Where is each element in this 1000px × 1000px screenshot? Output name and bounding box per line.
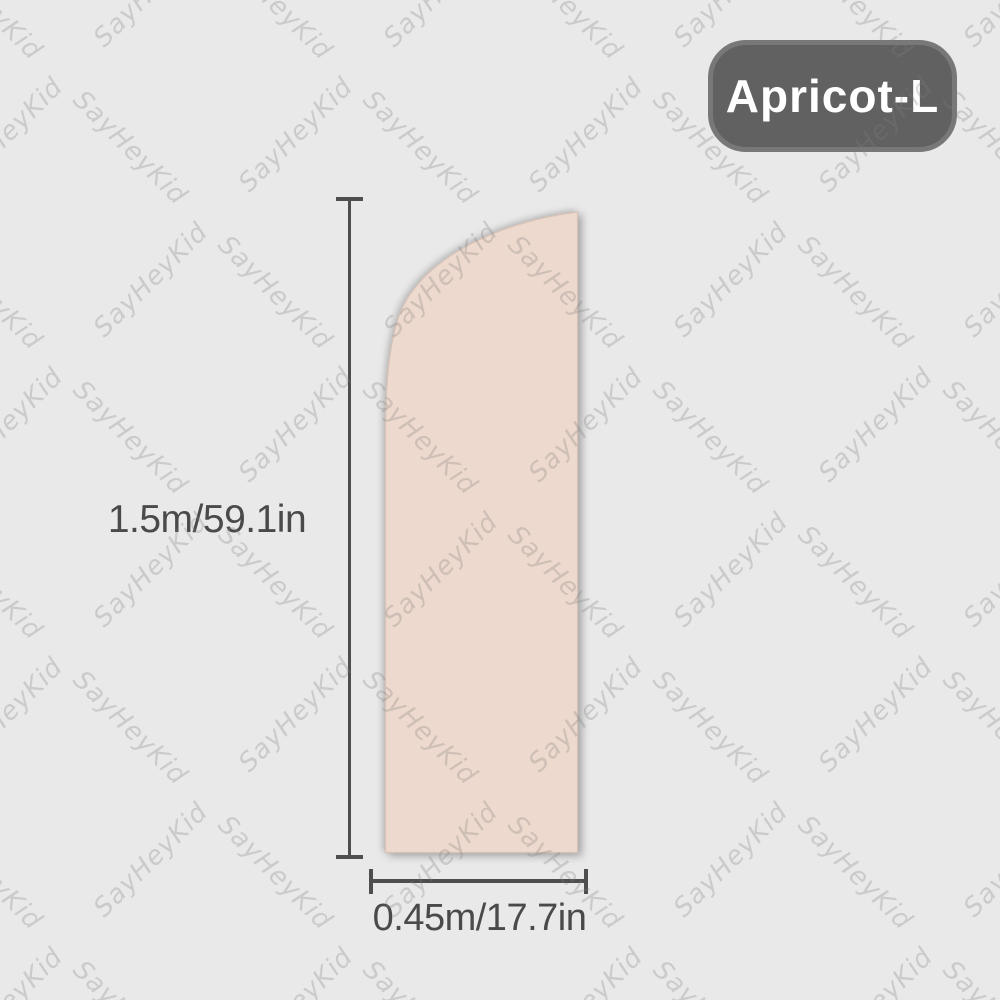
width-label: 0.45m/17.7in [352,898,607,938]
height-dimension-cap-top [336,197,363,201]
width-dimension-line [371,879,587,883]
height-label: 1.5m/59.1in [86,499,328,541]
variant-badge: Apricot-L [708,40,957,152]
product-image: 1.5m/59.1in 0.45m/17.7in Apricot-L SayHe… [0,0,1000,1000]
width-dimension-cap-left [369,869,373,894]
width-dimension-cap-right [584,869,588,894]
variant-badge-label: Apricot-L [726,69,939,123]
flag-shape [386,212,578,853]
height-dimension-cap-bottom [336,855,363,859]
height-dimension-line [348,199,351,857]
